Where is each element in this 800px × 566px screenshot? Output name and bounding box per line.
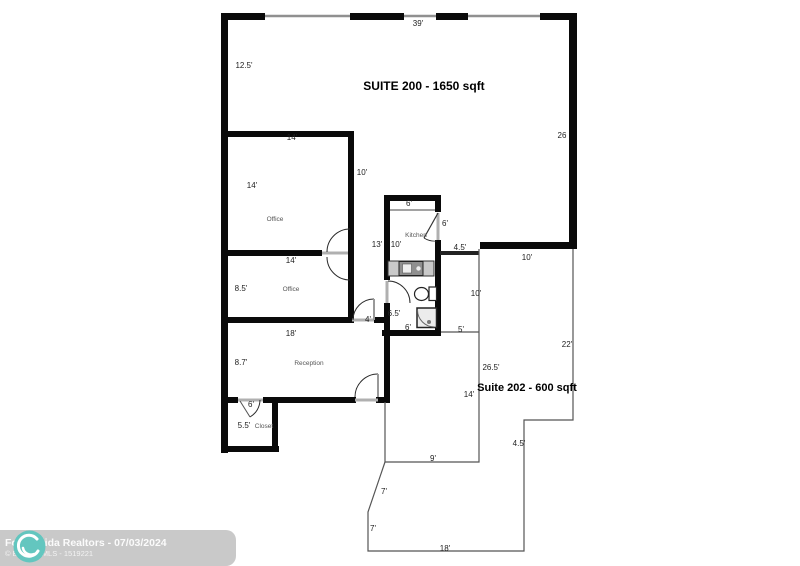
wall-top-seg2 xyxy=(350,13,404,20)
wall-reception-bottom xyxy=(263,397,356,403)
wall-closet-bottom xyxy=(221,446,279,452)
wall-top-seg1 xyxy=(221,13,265,20)
dim-kitchen-top: 6' xyxy=(406,199,412,208)
wall-reception-bottom-stub xyxy=(376,397,390,403)
dim-bath-right: 10' xyxy=(471,289,482,298)
toilet-bowl-icon xyxy=(415,288,429,301)
wall-kitchen-right-upper xyxy=(435,195,441,212)
dim-suite202-lower-left: 7' xyxy=(370,524,376,533)
suite202-title: Suite 202 - 600 sqft xyxy=(477,382,577,394)
dim-top-right: 10' xyxy=(522,253,533,262)
bath-door-arc xyxy=(388,281,410,303)
toilet-tank-icon xyxy=(429,287,437,301)
dim-office2-left: 8.5' xyxy=(235,284,248,293)
dim-closet-door: 6' xyxy=(248,400,254,409)
dim-upper-left: 12.5' xyxy=(235,61,253,70)
dim-closet-width: 5.5' xyxy=(238,421,251,430)
dim-suite202-right: 22' xyxy=(562,340,573,349)
wall-office-divider xyxy=(228,250,322,256)
dim-kitchen-door: 6' xyxy=(442,219,448,228)
reception-exit-door-arc xyxy=(355,374,378,397)
floor-plan-drawing: SUITE 200 - 1650 sqft Suite 202 - 600 sq… xyxy=(0,0,800,566)
room-reception: Reception xyxy=(294,360,324,367)
wall-closet-top-left xyxy=(221,397,238,403)
dim-top-width: 39' xyxy=(413,19,424,28)
wall-reception-top xyxy=(228,317,352,323)
room-office1: Office xyxy=(267,216,284,223)
door-arcs xyxy=(240,213,438,417)
dim-office1-top: 14' xyxy=(287,133,298,142)
wall-kitchen-top xyxy=(384,195,441,201)
room-closet: Closet xyxy=(255,423,274,430)
attribution-banner: For Florida Realtors - 07/03/2024 © Beac… xyxy=(0,530,236,566)
dim-reception-left: 8.7' xyxy=(235,358,248,367)
office1-door-arc xyxy=(327,229,350,252)
office2-door-arc xyxy=(327,257,350,280)
wall-offices-right xyxy=(348,131,354,323)
wall-bath-bottom xyxy=(382,330,441,336)
suite202-outline-upper xyxy=(385,249,479,462)
wall-suite-divider xyxy=(480,242,577,249)
dim-bath-bottom: 6' xyxy=(405,323,411,332)
dim-kitchen-height: 10' xyxy=(391,240,402,249)
dim-suite202-step: 4.5' xyxy=(513,439,526,448)
dim-suite202-inner-bottom: 9' xyxy=(430,454,436,463)
stove-burner-plate xyxy=(403,264,412,273)
dim-corridor: 5' xyxy=(458,325,464,334)
door-thresholds xyxy=(238,213,438,400)
wall-top-seg3 xyxy=(436,13,468,20)
dim-office1-left: 14' xyxy=(247,181,258,190)
shower-pan-icon xyxy=(417,308,437,328)
dim-hall-height: 13' xyxy=(372,240,383,249)
dim-office2-top: 14' xyxy=(286,256,297,265)
dim-suite202-diag: 7' xyxy=(381,487,387,496)
dim-bath-left: 6.5' xyxy=(388,309,401,318)
shower-drain xyxy=(427,320,431,324)
wall-kitchen-right-lower xyxy=(435,240,441,280)
wall-right xyxy=(569,13,577,249)
dim-hall-door: 4' xyxy=(365,315,371,324)
dim-suite202-left: 26.5' xyxy=(482,363,500,372)
wall-left xyxy=(221,13,228,453)
stove-knob xyxy=(416,266,420,270)
beachesmls-logo-icon xyxy=(13,530,46,563)
labels: SUITE 200 - 1650 sqft Suite 202 - 600 sq… xyxy=(235,19,577,553)
dim-suite202-left2: 14' xyxy=(464,390,475,399)
floor-plan-page: SUITE 200 - 1650 sqft Suite 202 - 600 sq… xyxy=(0,0,800,566)
dim-entry-gap: 4.5' xyxy=(454,243,467,252)
suite200-title: SUITE 200 - 1650 sqft xyxy=(363,79,484,93)
dim-suite202-bottom: 18' xyxy=(440,544,451,553)
dim-office1-right: 10' xyxy=(357,168,368,177)
dim-reception-top: 18' xyxy=(286,329,297,338)
dim-right-wall: 26 xyxy=(558,131,567,140)
room-office2: Office xyxy=(283,286,300,293)
room-kitchen: Kitchen xyxy=(405,232,427,239)
